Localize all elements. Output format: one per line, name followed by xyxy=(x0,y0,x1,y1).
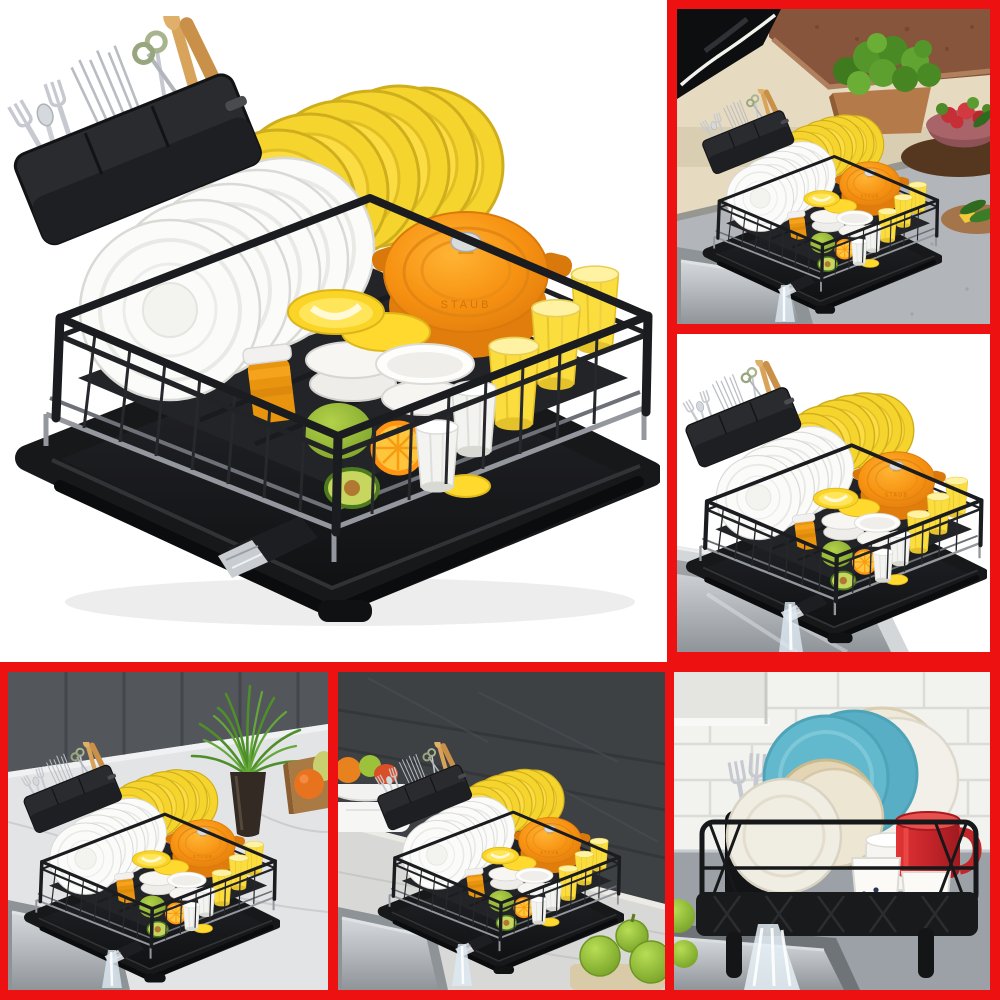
product-image-wood-wall xyxy=(338,672,665,990)
product-image-kitchen-counter xyxy=(677,9,990,324)
product-image-sink-drain xyxy=(677,334,990,652)
product-image-subway-tile xyxy=(674,672,990,990)
product-image-marble-counter xyxy=(8,672,328,990)
product-image-main xyxy=(0,0,663,660)
window-ledge xyxy=(674,672,770,726)
front-white-plate xyxy=(727,779,841,893)
product-image-collage xyxy=(0,0,1000,1000)
